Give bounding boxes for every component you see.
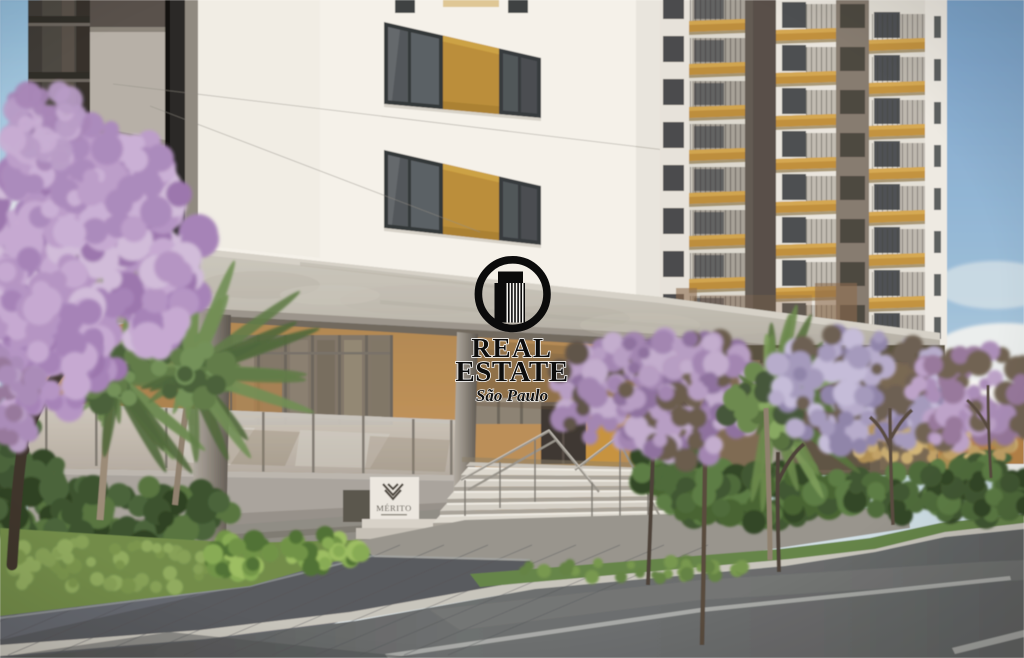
svg-text:ESTATE: ESTATE	[455, 356, 568, 388]
svg-text:São Paulo: São Paulo	[476, 386, 548, 405]
